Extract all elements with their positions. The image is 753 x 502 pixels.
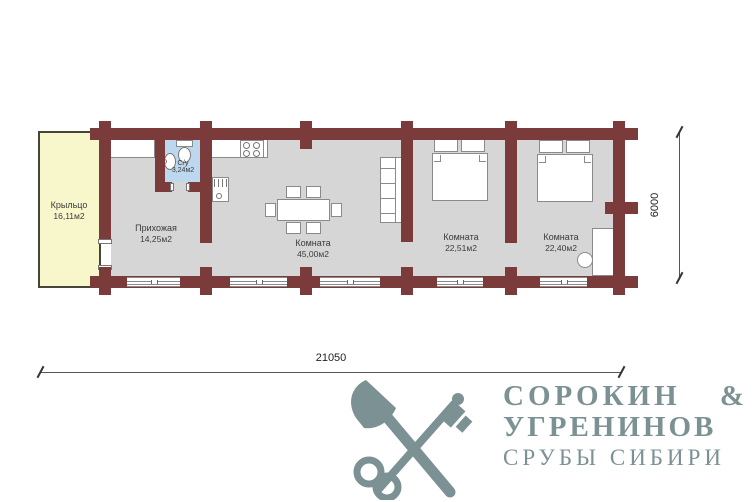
window-icon [437, 277, 483, 287]
bed-icon [537, 139, 593, 203]
room-name: Крыльцо [51, 200, 88, 211]
mattress-icon [432, 153, 488, 201]
stove-icon [240, 140, 264, 158]
room-area: 22,40м2 [543, 243, 578, 254]
room-label-porch: Крыльцо 16,11м2 [51, 200, 88, 222]
door-jamb-icon [170, 183, 174, 191]
chair-icon [331, 203, 342, 217]
stool-icon [577, 252, 593, 268]
room-name: Комната [443, 232, 478, 243]
toilet-icon [176, 140, 193, 147]
mattress-icon [537, 154, 593, 202]
stove-burner-icon [243, 142, 250, 149]
room-name: С/у [172, 158, 194, 167]
log-crossing-icon [300, 267, 312, 295]
chair-icon [286, 186, 301, 198]
bed-icon [432, 138, 488, 202]
room-name: Комната [543, 232, 578, 243]
window-icon [127, 277, 180, 287]
dimension-width-label: 21050 [316, 352, 347, 364]
logo-text: СОРОКИН & УГРЕНИНОВ СРУБЫ СИБИРИ [503, 381, 748, 471]
chair-icon [265, 203, 276, 217]
pillow-icon [461, 139, 485, 152]
stove-burner-icon [243, 150, 250, 157]
stove-burner-icon [253, 150, 260, 157]
room-label-living: Комната 45,00м2 [295, 238, 330, 260]
logo-line-2: УГРЕНИНОВ [503, 412, 748, 443]
sink-drainer-icon [214, 179, 227, 187]
logo-tagline: СРУБЫ СИБИРИ [503, 444, 748, 472]
room-area: 45,00м2 [295, 249, 330, 260]
kitchen-sink-icon [212, 177, 229, 202]
log-crossing-icon [200, 267, 212, 295]
chair-icon [286, 222, 301, 234]
room-area: 22,51м2 [443, 243, 478, 254]
axe-and-key-logo-icon [342, 378, 492, 500]
wall [90, 128, 638, 140]
logo-name-1: СОРОКИН [503, 381, 681, 412]
chair-icon [306, 222, 321, 234]
log-crossing-icon [605, 202, 638, 214]
log-crossing-icon [401, 121, 413, 149]
pillow-icon [566, 140, 590, 153]
log-crossing-icon [613, 121, 625, 149]
wardrobe-icon [111, 140, 155, 158]
chair-icon [306, 186, 321, 198]
dining-table-icon [277, 199, 330, 221]
wall [505, 140, 517, 243]
wall [188, 182, 202, 192]
wall [401, 140, 413, 242]
pillow-icon [539, 140, 563, 153]
room-area: 3,24м2 [172, 167, 194, 176]
log-crossing-icon [99, 121, 111, 149]
log-crossing-icon [99, 267, 111, 295]
logo-ampersand: & [720, 381, 748, 412]
door-jamb-icon [186, 183, 190, 191]
dimension-line-horizontal [40, 372, 622, 373]
log-crossing-icon [300, 121, 312, 149]
window-icon [320, 277, 380, 287]
dimension-height-label: 6000 [649, 193, 661, 217]
room-area: 16,11м2 [51, 211, 88, 222]
door-jamb-icon [98, 239, 112, 244]
dimension-line-vertical [679, 132, 680, 278]
floor-plan-page: Крыльцо 16,11м2 Прихожая 14,25м2 С/у 3,2… [0, 0, 753, 502]
logo-line-1: СОРОКИН & [503, 381, 748, 412]
window-icon [230, 277, 287, 287]
room-label-bedroom-2: Комната 22,40м2 [543, 232, 578, 254]
room-label-bathroom: С/у 3,24м2 [172, 158, 194, 176]
room-name: Комната [295, 238, 330, 249]
room-label-bedroom-1: Комната 22,51м2 [443, 232, 478, 254]
sofa-icon [380, 157, 403, 223]
log-crossing-icon [505, 267, 517, 295]
log-crossing-icon [401, 267, 413, 295]
room-area: 14,25м2 [135, 234, 177, 245]
room-name: Прихожая [135, 223, 177, 234]
pillow-icon [434, 139, 458, 152]
log-crossing-icon [613, 267, 625, 295]
dimension-tick-icon [676, 272, 684, 284]
room-label-hallway: Прихожая 14,25м2 [135, 223, 177, 245]
wardrobe-icon [592, 228, 613, 276]
stove-burner-icon [253, 142, 260, 149]
cabinet-knob-icon [216, 193, 222, 199]
window-icon [540, 277, 587, 287]
log-crossing-icon [200, 121, 212, 149]
log-crossing-icon [505, 121, 517, 149]
